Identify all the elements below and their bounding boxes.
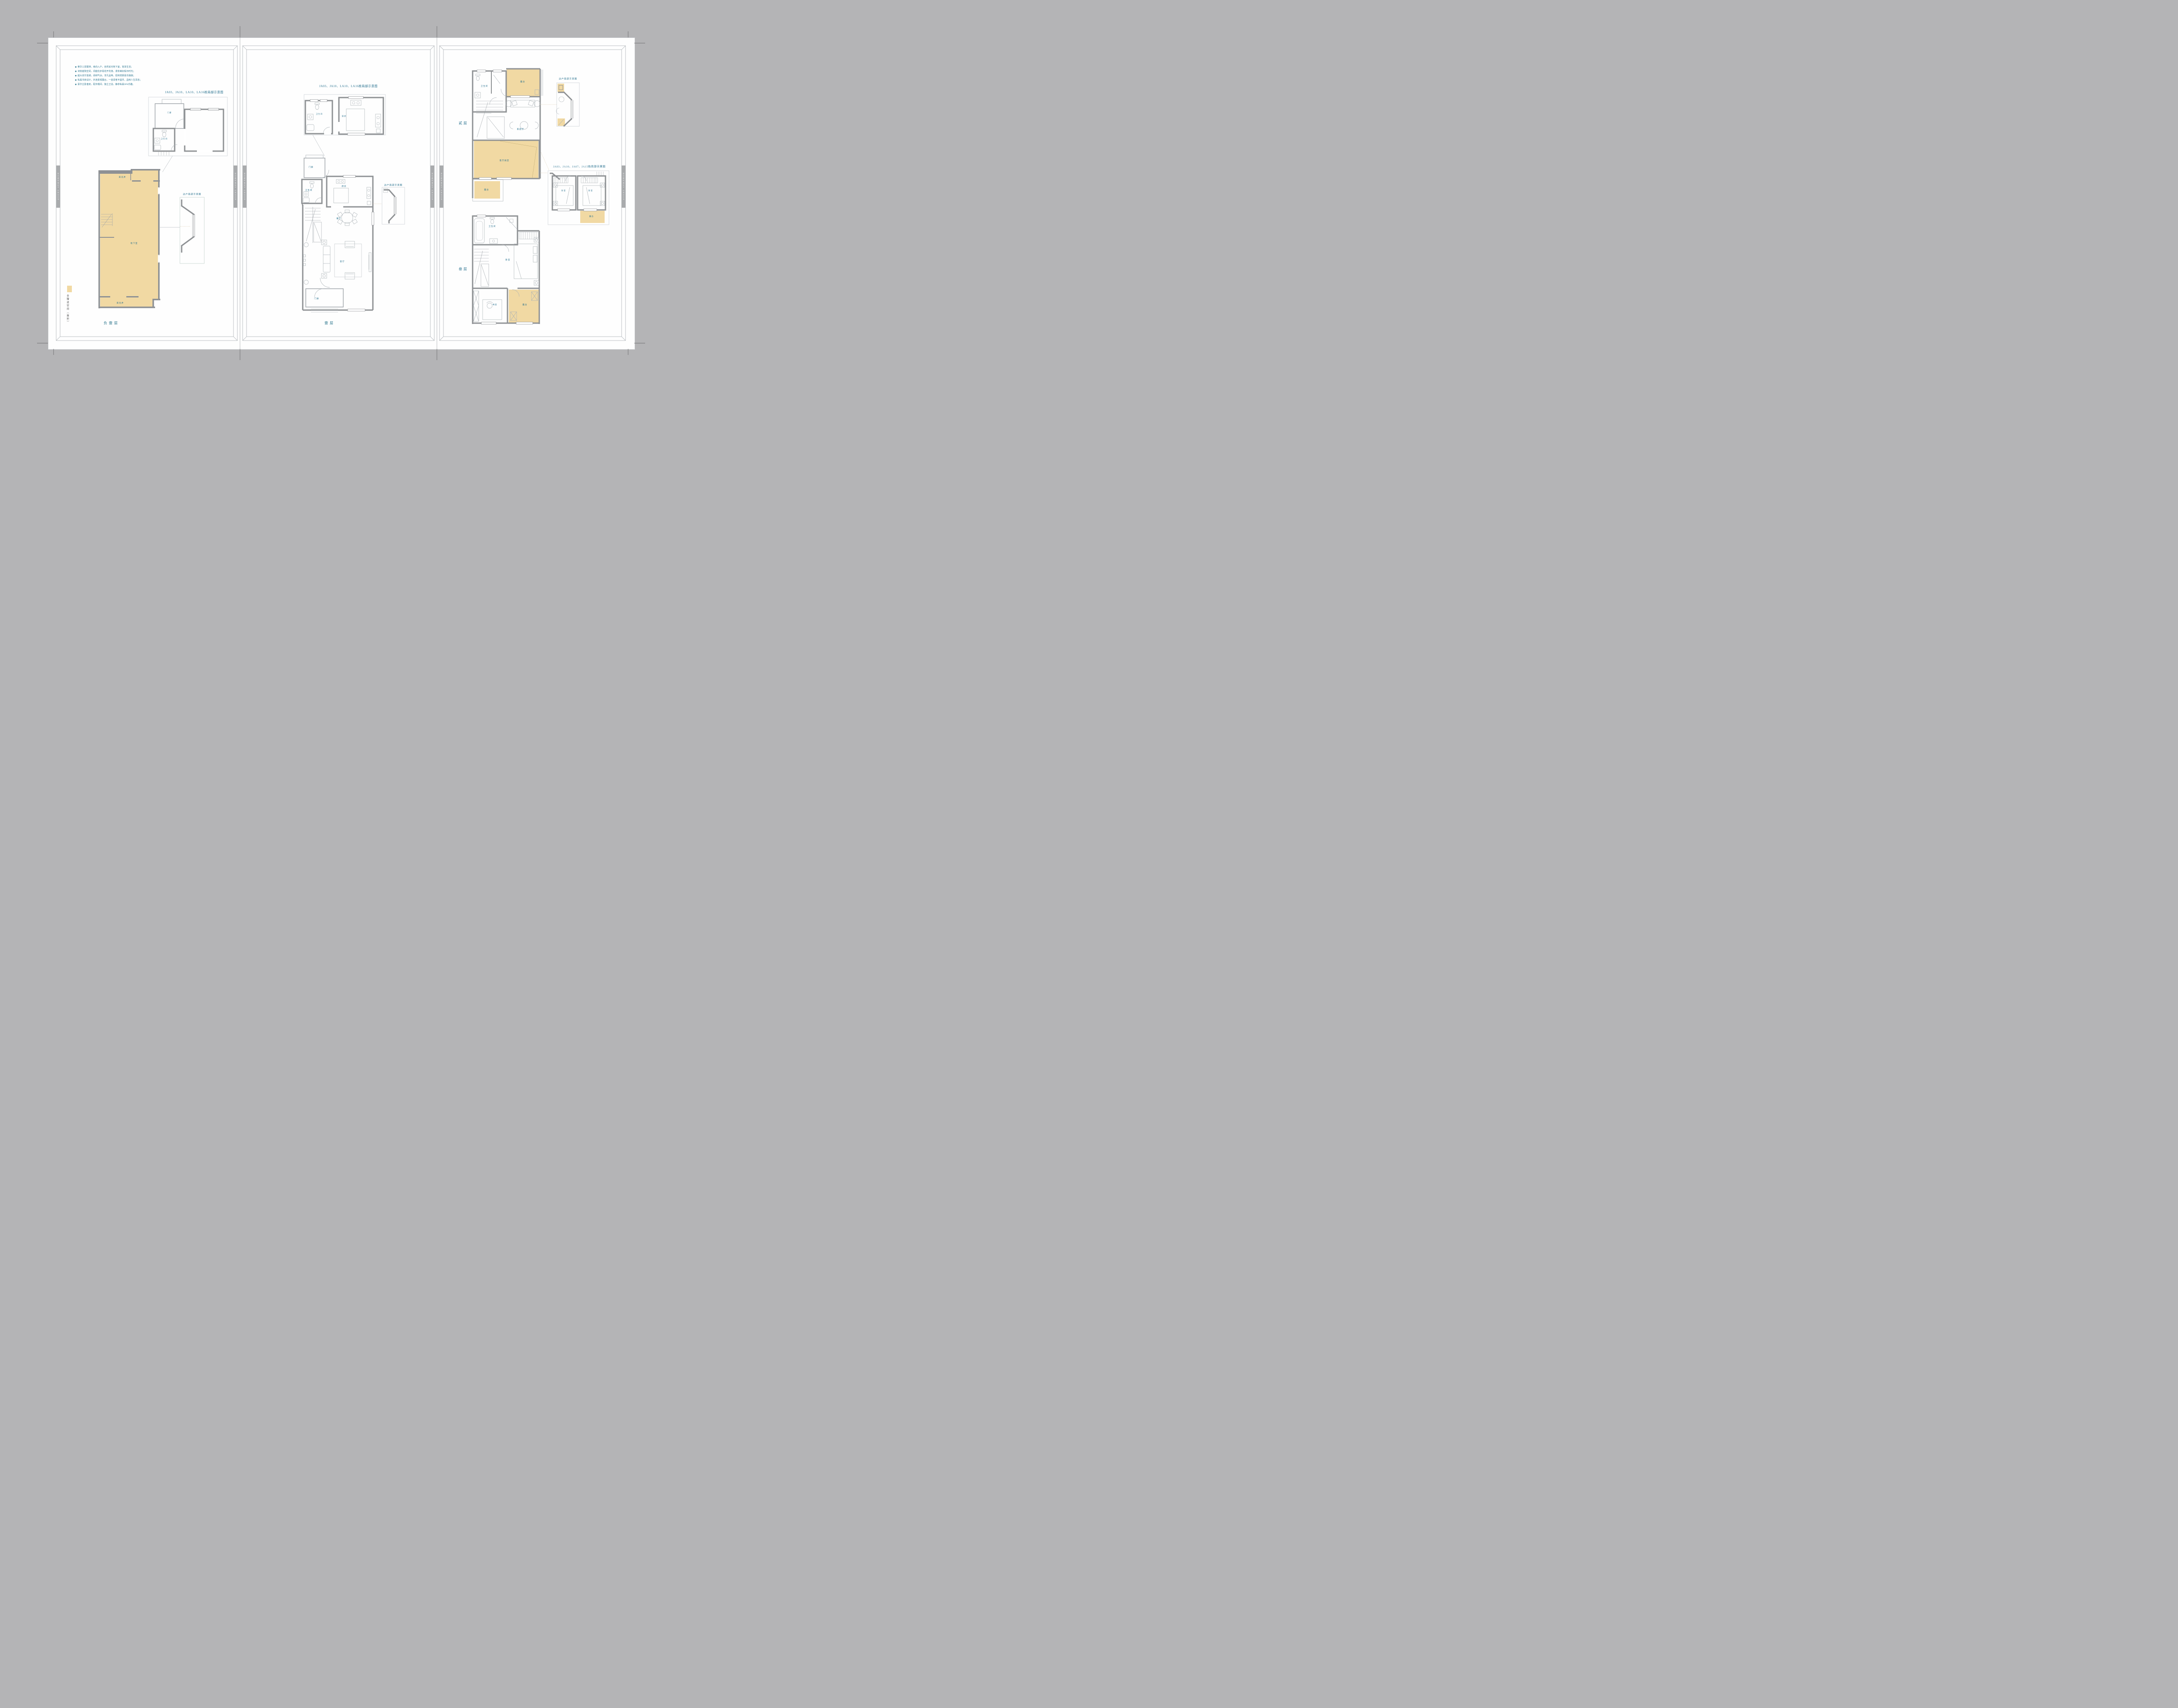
feature-line: ◉诗意庭院空间，闲庭信步看花开花落，漫享美好假日时光； bbox=[75, 70, 135, 73]
bullet-icon: ◉ bbox=[75, 74, 77, 77]
floor-tag-3f: 叁层 bbox=[459, 267, 468, 272]
room-label-bedroom-a: 卧室 bbox=[561, 189, 566, 192]
bullet-icon: ◉ bbox=[75, 79, 77, 81]
room-label-porch-bottom: 门廊 bbox=[314, 297, 319, 300]
caption-first-floor: 壹层 bbox=[325, 321, 335, 326]
room-label-bath-2f: 卫生间 bbox=[481, 85, 488, 88]
spine-bar: HOMEWAY GROUP bbox=[243, 165, 247, 208]
legend-swatch bbox=[67, 286, 72, 292]
room-label-basement: 地下室 bbox=[131, 242, 138, 245]
room-label-lightwell-top: 采光井 bbox=[119, 176, 126, 179]
feature-line: ◉超大双厅连通，阔绰气派，非凡品味，招待宾朋喜乐融融； bbox=[75, 74, 135, 77]
plan-title-2: JA03、JA10、LA10、LA16栋局部示意图 bbox=[319, 84, 378, 88]
legend-label: 全赠送空间（面积） bbox=[66, 294, 69, 324]
room-label-study: 书房 bbox=[492, 304, 497, 306]
feature-line: ◉豪华主卧套房，配衣帽间、独立卫浴，静享私属SPA乐趣。 bbox=[75, 83, 135, 86]
room-label-terrace2-2f: 露台 bbox=[484, 189, 489, 191]
spine-text: HOMEWAY GROUP bbox=[244, 173, 246, 201]
spine-text: HOMEWAY GROUP bbox=[440, 173, 443, 201]
room-label-porch: 门廊 bbox=[167, 111, 172, 114]
plan-title-1: JA03、JA10、LA10、LA16栋局部示意图 bbox=[165, 90, 223, 94]
caption-basement-floor: 负壹层 bbox=[104, 321, 119, 326]
room-label-dining: 餐厅 bbox=[336, 217, 341, 220]
spine-bar: HOMEWAY GROUP bbox=[233, 165, 237, 208]
feature-text: 诗意庭院空间，闲庭信步看花开花落，漫享美好假日时光； bbox=[78, 71, 135, 73]
room-label-void: 客厅挑空 bbox=[500, 159, 509, 162]
feature-text: 奢华三层联排，南向入户，自然采光地下室，宽享生活； bbox=[78, 66, 133, 68]
feature-text: 私属书房设计，外连景观露台，一壶清茗半盏月，品味人生百态； bbox=[78, 79, 142, 81]
bullet-icon: ◉ bbox=[75, 83, 77, 85]
spine-bar: HOMEWAY GROUP bbox=[622, 165, 626, 208]
room-label-kitchen: 厨房 bbox=[342, 185, 346, 188]
room-label-terrace-small: 露台 bbox=[589, 215, 594, 218]
room-label-porch: 门廊 bbox=[308, 166, 313, 169]
spine-text: HOMEWAY GROUP bbox=[431, 173, 433, 201]
side-unit-label-3: 边户局部示意图 bbox=[559, 78, 577, 81]
room-label-terrace-3f: 露台 bbox=[522, 304, 527, 306]
side-unit-label-2: 边户局部示意图 bbox=[384, 184, 402, 187]
spine-text: HOMEWAY GROUP bbox=[57, 173, 59, 201]
room-label-bath-3f: 卫生间 bbox=[489, 225, 496, 228]
room-label-lightwell-bottom: 采光井 bbox=[117, 302, 124, 304]
feature-text: 豪华主卧套房，配衣帽间、独立卫浴，静享私属SPA乐趣。 bbox=[78, 84, 135, 86]
room-label-bedroom-3f: 卧室 bbox=[505, 259, 510, 261]
bullet-icon: ◉ bbox=[75, 66, 77, 68]
room-label-family: 家庭厅 bbox=[517, 128, 524, 131]
room-label-terrace-2f: 露台 bbox=[520, 81, 525, 83]
bullet-icon: ◉ bbox=[75, 70, 77, 72]
spine-text: HOMEWAY GROUP bbox=[234, 173, 237, 201]
brochure-spread: HOMEWAY GROUP HOMEWAY GROUP HOMEWAY GROU… bbox=[0, 0, 682, 392]
floor-tag-2f: 贰层 bbox=[459, 121, 468, 126]
room-label-bath: 卫生间 bbox=[316, 113, 323, 115]
spine-bar: HOMEWAY GROUP bbox=[440, 165, 443, 208]
room-label-bath: 卫生间 bbox=[305, 189, 313, 192]
feature-line: ◉私属书房设计，外连景观露台，一壶清茗半盏月，品味人生百态； bbox=[75, 78, 142, 81]
room-label-kitchen: 厨房 bbox=[342, 115, 346, 118]
room-label-bedroom-b: 卧室 bbox=[588, 189, 593, 192]
side-unit-label-1: 边户局部示意图 bbox=[183, 193, 201, 196]
room-label-bath: 卫生间 bbox=[161, 138, 168, 140]
spine-bar: HOMEWAY GROUP bbox=[430, 165, 434, 208]
spine-bar: HOMEWAY GROUP bbox=[56, 165, 60, 208]
feature-text: 超大双厅连通，阔绰气派，非凡品味，招待宾朋喜乐融融； bbox=[78, 75, 135, 77]
spine-text: HOMEWAY GROUP bbox=[622, 173, 625, 201]
feature-line: ◉奢华三层联排，南向入户，自然采光地下室，宽享生活； bbox=[75, 65, 133, 68]
plan-title-3: JA03、JA10、JA07、JA15栋局部示意图 bbox=[553, 165, 605, 169]
room-label-living: 客厅 bbox=[340, 260, 345, 263]
